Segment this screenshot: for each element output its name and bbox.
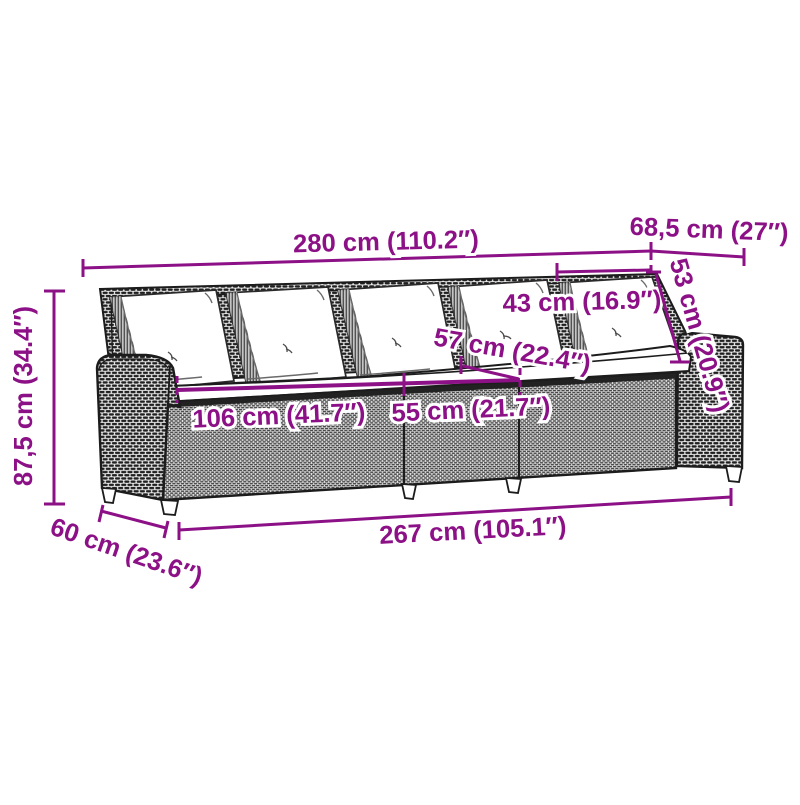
svg-text:280 cm (110.2″): 280 cm (110.2″) xyxy=(293,226,480,259)
svg-text:87,5 cm (34.4″): 87,5 cm (34.4″) xyxy=(10,306,38,486)
svg-text:43 cm (16.9″): 43 cm (16.9″) xyxy=(502,286,661,318)
